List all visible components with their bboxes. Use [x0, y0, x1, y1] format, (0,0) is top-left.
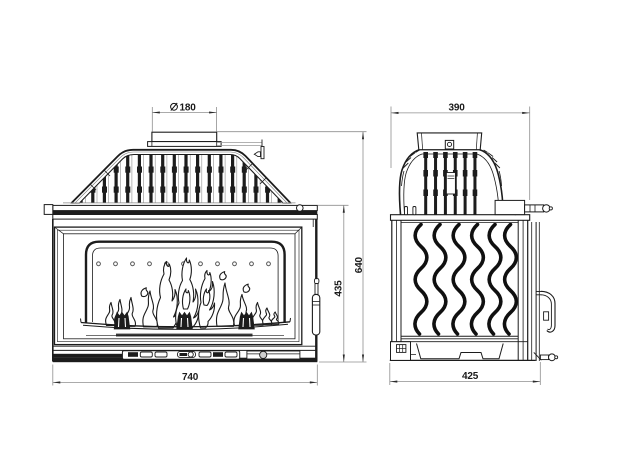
svg-text:425: 425	[462, 371, 479, 382]
svg-text:640: 640	[354, 256, 365, 273]
svg-text:390: 390	[449, 103, 466, 114]
svg-text:740: 740	[182, 372, 199, 383]
svg-text:180: 180	[180, 103, 197, 114]
svg-text:435: 435	[333, 280, 344, 297]
